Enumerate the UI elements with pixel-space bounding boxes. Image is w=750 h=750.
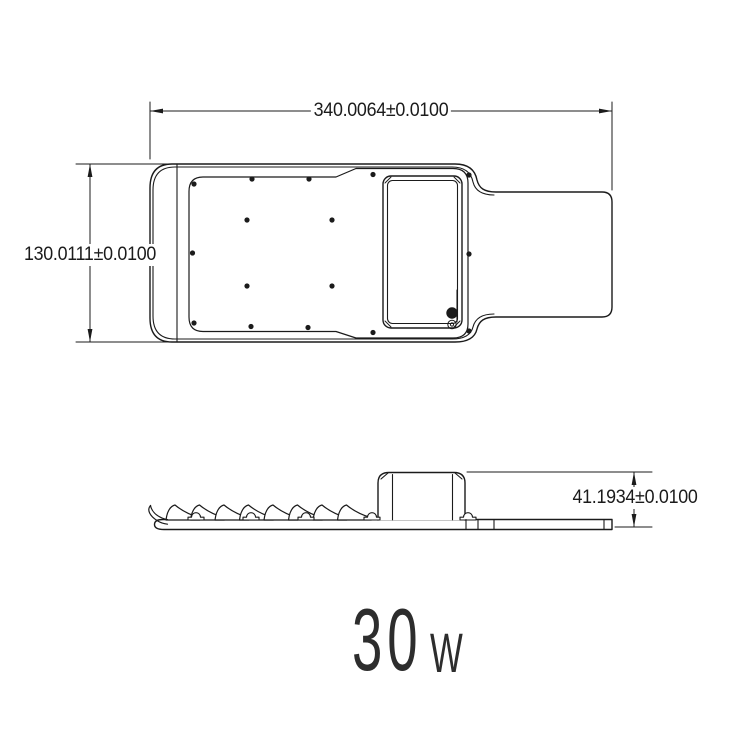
top-view bbox=[150, 164, 612, 342]
side-view bbox=[149, 473, 612, 530]
screw-hole-dot bbox=[466, 251, 471, 256]
screw-hole-dot bbox=[329, 217, 334, 222]
screw-hole-dot bbox=[466, 328, 471, 333]
screw-hole-dot bbox=[305, 325, 310, 330]
screw-holes bbox=[190, 172, 472, 335]
driver-cover-inner bbox=[388, 181, 458, 324]
screw-hole-dot bbox=[244, 283, 249, 288]
arrowhead bbox=[88, 164, 93, 177]
screw-hole-dot bbox=[370, 330, 375, 335]
cable-gland-knob bbox=[447, 308, 457, 318]
lamp-outline bbox=[150, 164, 612, 342]
height-dimension-label: 130.0111±0.0100 bbox=[21, 244, 159, 266]
power-value: 30 bbox=[352, 604, 423, 676]
driver-cover bbox=[383, 176, 462, 328]
screw-hole-dot bbox=[248, 324, 253, 329]
screw-hole-dot bbox=[244, 217, 249, 222]
arrowhead bbox=[632, 514, 637, 527]
screw-hole-dot bbox=[466, 172, 471, 177]
driver-cover-corner-chamfers bbox=[385, 177, 460, 327]
screw-hole-dot bbox=[191, 320, 196, 325]
arrowhead bbox=[88, 329, 93, 342]
lamp-inner-rim bbox=[153, 167, 494, 339]
screw-hole-dot bbox=[191, 181, 196, 186]
power-unit: W bbox=[430, 631, 463, 676]
arrowhead bbox=[632, 472, 637, 485]
drawing-sheet: 340.0064±0.0100 130.0111±0.0100 41.1934±… bbox=[0, 0, 750, 750]
arrowhead bbox=[599, 109, 612, 114]
screw-hole-dot bbox=[306, 176, 311, 181]
arrowhead bbox=[150, 109, 163, 114]
screw-hole-dot bbox=[190, 250, 195, 255]
led-panel-recess bbox=[189, 169, 468, 339]
screw-hole-dot bbox=[370, 172, 375, 177]
screw-hole-dot bbox=[329, 283, 334, 288]
power-label: 30 W bbox=[352, 604, 463, 676]
thickness-dimension-label: 41.1934±0.0100 bbox=[570, 487, 701, 509]
screw-hole-dot bbox=[249, 176, 254, 181]
lamp-body-side bbox=[155, 520, 613, 530]
width-dimension-label: 340.0064±0.0100 bbox=[311, 100, 451, 122]
